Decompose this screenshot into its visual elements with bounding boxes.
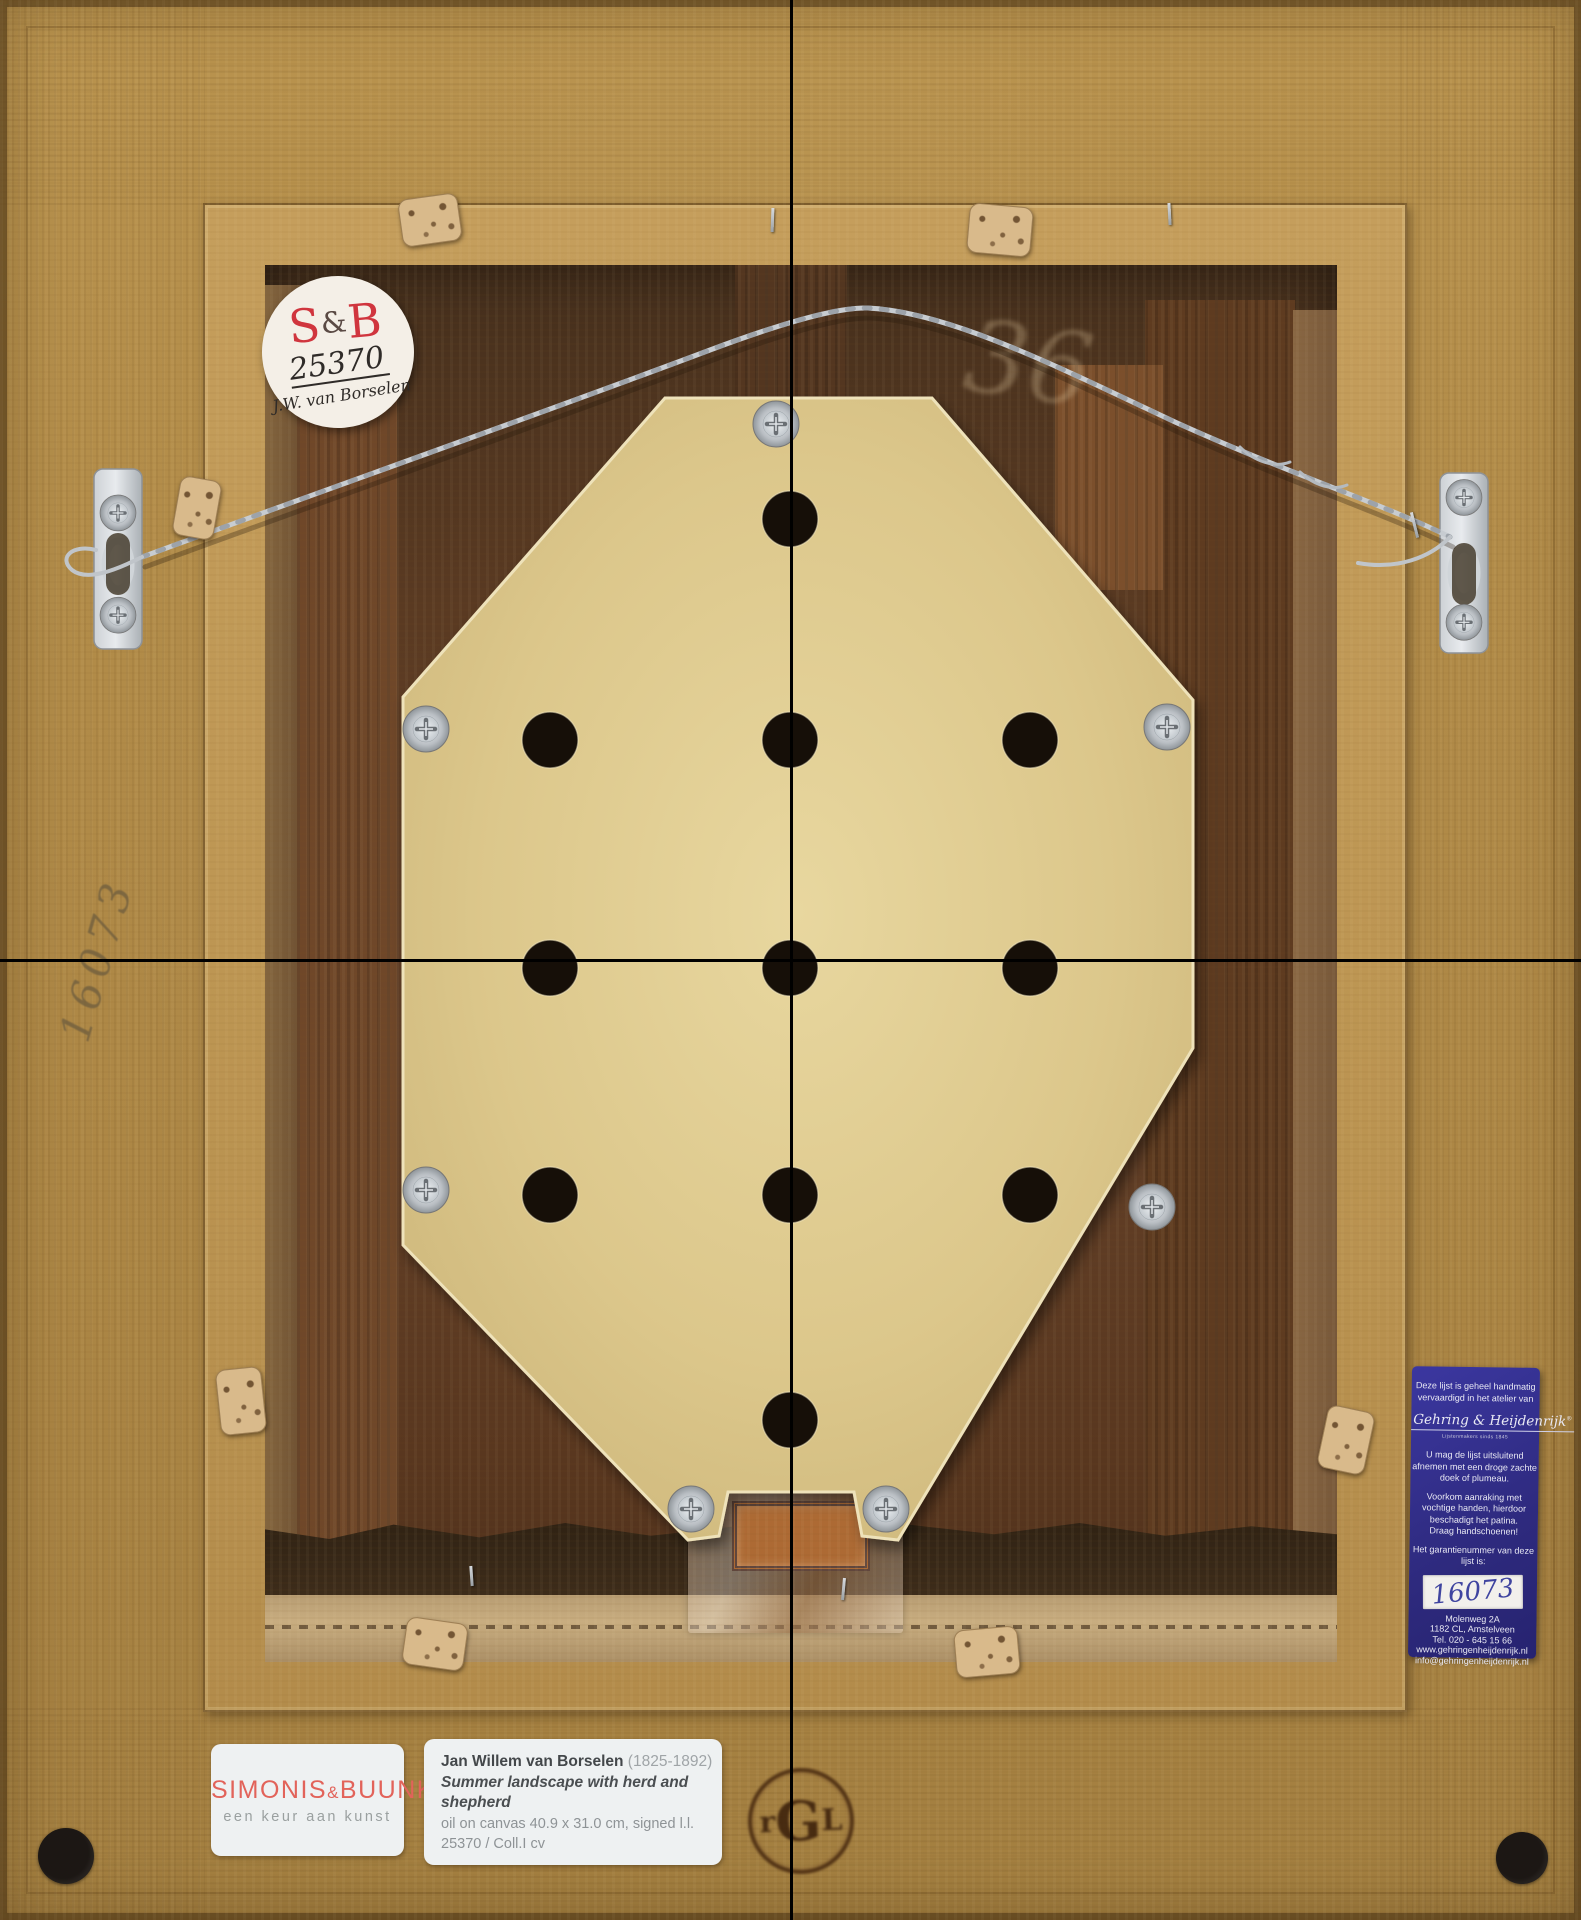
old-stamp-under-tape bbox=[732, 1501, 870, 1571]
framer-warning-text: Voorkom aanraking met vochtige handen, h… bbox=[1410, 1491, 1539, 1539]
cork-spacer bbox=[401, 1616, 469, 1672]
artwork-inventory: 25370 / Coll.I cv bbox=[441, 1834, 722, 1855]
burned-maker-stamp: rGL bbox=[746, 1766, 856, 1876]
framed-painting-back-photo: 36 bbox=[0, 0, 1581, 1920]
framer-care-text: U mag de lijst uitsluitend afnemen met e… bbox=[1410, 1449, 1538, 1485]
gallery-tagline: een keur aan kunst bbox=[211, 1809, 404, 1825]
framer-logo: Gehring & Heijdenrijk® bbox=[1411, 1406, 1574, 1432]
cork-spacer bbox=[215, 1366, 268, 1436]
gallery-label: SIMONIS&BUUNK een keur aan kunst bbox=[211, 1744, 404, 1856]
artwork-title-line1: Summer landscape with herd and bbox=[441, 1773, 722, 1794]
artwork-label: Jan Willem van Borselen (1825-1892) Summ… bbox=[424, 1739, 722, 1865]
cork-spacer bbox=[966, 202, 1034, 257]
cork-spacer bbox=[397, 192, 463, 248]
hanging-plate-left bbox=[94, 469, 142, 649]
hanging-plate-right bbox=[1440, 473, 1488, 653]
felt-pad-bottom-left bbox=[38, 1828, 94, 1884]
guarantee-number-box: 16073 bbox=[1423, 1574, 1523, 1608]
framer-intro-line: vervaardigd in het atelier van bbox=[1412, 1392, 1540, 1405]
cork-spacer bbox=[953, 1625, 1021, 1678]
crosshair-horizontal-line bbox=[0, 959, 1581, 962]
taped-old-label bbox=[688, 1493, 903, 1633]
framer-address: Molenweg 2A 1182 CL, Amstelveen Tel. 020… bbox=[1408, 1613, 1537, 1667]
gallery-name: SIMONIS&BUUNK bbox=[211, 1777, 404, 1806]
framer-label-blue: Deze lijst is geheel handmatig vervaardi… bbox=[1408, 1366, 1540, 1659]
artwork-artist-line: Jan Willem van Borselen (1825-1892) bbox=[441, 1752, 722, 1773]
stretcher-bar-right bbox=[1145, 300, 1295, 1662]
felt-pad-bottom-right bbox=[1496, 1832, 1548, 1884]
nail bbox=[1410, 512, 1419, 538]
artwork-title-line2: shepherd bbox=[441, 1793, 722, 1814]
guarantee-number: 16073 bbox=[1422, 1570, 1525, 1613]
framer-tagline: Lijstenmakers sinds 1845 bbox=[1411, 1431, 1539, 1444]
chalk-number: 36 bbox=[957, 297, 1099, 431]
artwork-medium: oil on canvas 40.9 x 31.0 cm, signed l.l… bbox=[441, 1814, 722, 1835]
stretcher-canvas-area: 36 bbox=[265, 265, 1337, 1662]
stretcher-bar-left bbox=[297, 310, 397, 1660]
framer-guarantee-text: Het garantienummer van deze lijst is: bbox=[1409, 1544, 1537, 1569]
